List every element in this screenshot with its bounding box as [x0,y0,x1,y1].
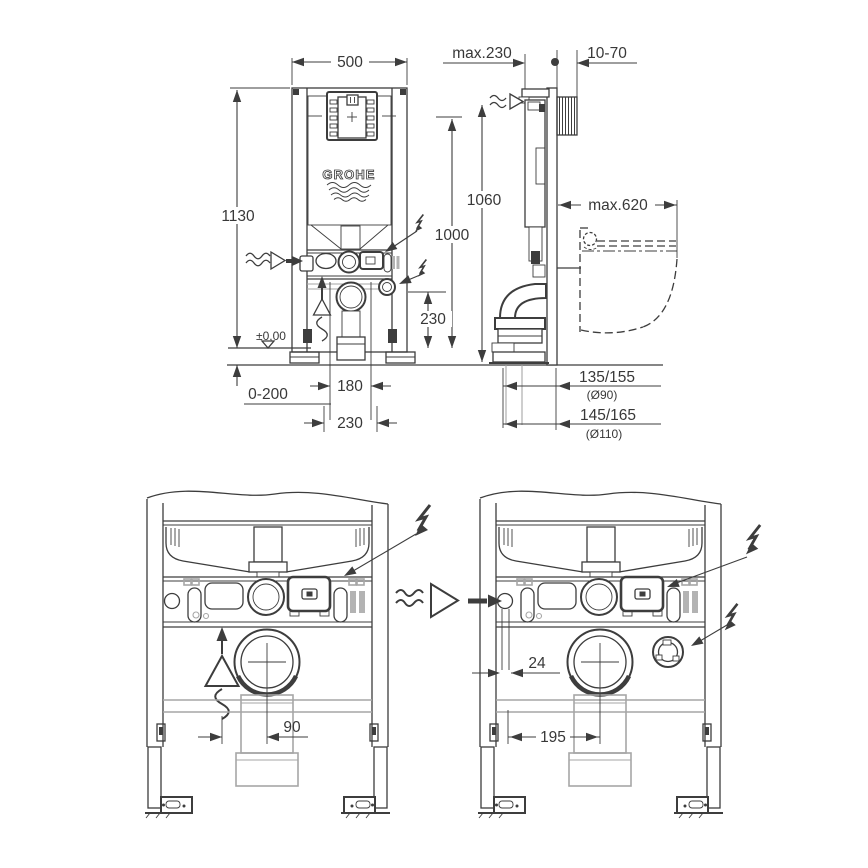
svg-text:90: 90 [283,719,301,736]
svg-text:500: 500 [337,54,363,71]
cistern-base [499,527,702,577]
break-line [147,491,388,504]
dim-outlet-110: 145/165 (Ø110) [503,407,661,441]
dim-inlet-drain-spacing: 195 [508,710,600,746]
toilet-bowl-outline [580,228,677,333]
dim-vent-offset: 90 [198,716,308,744]
legs-and-feet [478,747,723,818]
connection-band [163,577,372,627]
dim-inlet-offset: 24 [472,655,560,677]
wall-reference-dot [551,58,559,66]
break-line [480,491,721,504]
dim-drain-spacing-outer: 230 [304,406,397,432]
actuator-connector [347,95,358,105]
lightning-icon [342,505,430,580]
dim-floor-level: ±0,00 [256,329,286,343]
water-supply-icon [396,584,502,617]
installation-frame-drawing: GROHE [0,0,868,868]
technical-drawing-page: GROHE [0,0,868,868]
side-view: max.230 10-70 [443,45,677,441]
svg-text:1000: 1000 [435,227,470,244]
detail-view-right: 24 195 [396,491,760,818]
water-inlet-port [300,256,313,271]
wall-mounting-plate [557,97,577,135]
water-inlet-port [165,594,180,609]
cistern-base [166,527,369,577]
svg-text:(Ø110): (Ø110) [586,427,622,441]
svg-text:195: 195 [540,729,566,746]
svg-text:230: 230 [420,311,446,328]
brand-name: GROHE [322,167,375,182]
water-supply-icon [490,94,523,109]
svg-text:1130: 1130 [221,208,255,225]
svg-text:135/155: 135/155 [579,369,635,386]
svg-text:180: 180 [337,378,363,395]
svg-text:24: 24 [528,655,546,672]
dim-outlet-height: 230 [408,292,452,348]
flush-bend [339,252,360,273]
dim-wall-range: 10-70 [577,45,637,67]
svg-text:230: 230 [337,415,363,432]
dim-frame-depth: max.230 [443,45,525,67]
svg-text:max.230: max.230 [452,45,512,62]
dim-outlet-90: 135/155 (Ø90) [503,369,661,402]
svg-text:(Ø90): (Ø90) [587,388,618,402]
dim-total-height: 1130 [215,88,290,348]
svg-text:1060: 1060 [467,192,502,209]
dim-floor-buildup: 0-200 [233,365,331,404]
dim-bowl-depth: max.620 [558,197,677,258]
vent-icon [206,627,239,719]
svg-text:10-70: 10-70 [587,45,627,62]
legs-and-feet [145,747,390,818]
svg-text:max.620: max.620 [588,197,648,214]
drain-elbow [489,284,549,363]
detail-view-left: 90 [145,491,430,818]
svg-text:145/165: 145/165 [580,407,636,424]
dim-front-width: 500 [292,54,407,85]
power-connection-box [360,252,383,269]
round-connector [653,637,683,667]
svg-text:0-200: 0-200 [248,386,288,403]
round-connector [379,279,395,295]
